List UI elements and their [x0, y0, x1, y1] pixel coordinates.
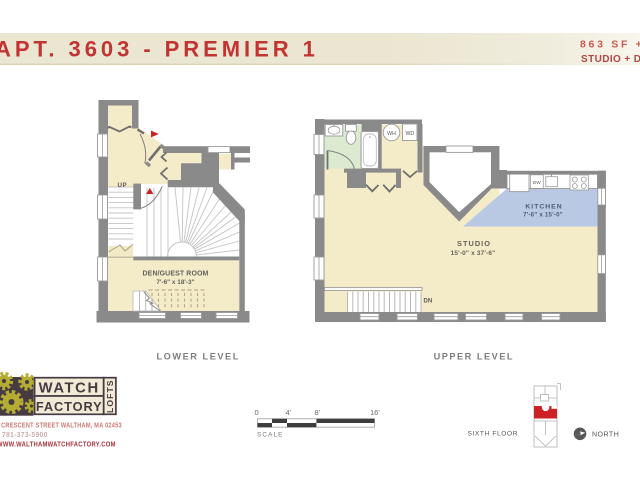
svg-text:DEN/GUEST ROOM: DEN/GUEST ROOM [143, 271, 209, 278]
svg-text:16': 16' [370, 408, 380, 417]
svg-text:NORTH: NORTH [592, 432, 619, 439]
svg-text:STUDIO + DEN: STUDIO + DEN [581, 54, 640, 65]
svg-text:WH: WH [387, 131, 396, 137]
svg-text:863 SF +: 863 SF + [580, 39, 640, 51]
svg-text:7'-6" x 18'-3": 7'-6" x 18'-3" [156, 279, 194, 286]
svg-text:KITCHEN: KITCHEN [525, 204, 562, 211]
svg-text:LOWER LEVEL: LOWER LEVEL [156, 352, 239, 362]
svg-text:SIXTH FLOOR: SIXTH FLOOR [468, 431, 519, 438]
svg-text:APT. 3603 - PREMIER 1: APT. 3603 - PREMIER 1 [0, 37, 319, 62]
svg-text:UPPER LEVEL: UPPER LEVEL [434, 352, 514, 362]
svg-text:7'-6" x 15'-0": 7'-6" x 15'-0" [523, 212, 563, 219]
svg-text:8 CRESCENT STREET WALTHAM, MA: 8 CRESCENT STREET WALTHAM, MA 02453 [0, 422, 122, 430]
svg-text:WATCH: WATCH [39, 381, 100, 397]
svg-text:STUDIO: STUDIO [457, 239, 491, 248]
svg-text:DN: DN [424, 299, 433, 305]
svg-text:WWW.WALTHAMWATCHFACTORY.COM: WWW.WALTHAMWATCHFACTORY.COM [0, 441, 116, 449]
svg-text:LOFTS: LOFTS [105, 379, 115, 413]
svg-text:SCALE: SCALE [257, 432, 283, 439]
svg-text:FACTORY: FACTORY [36, 399, 103, 414]
svg-text:8': 8' [315, 408, 321, 417]
svg-text:0: 0 [255, 408, 259, 417]
svg-text:781-373-5900: 781-373-5900 [2, 432, 48, 439]
svg-text:UP: UP [118, 182, 128, 189]
svg-text:DW: DW [533, 180, 541, 186]
svg-text:15'-0" x 37'-6": 15'-0" x 37'-6" [451, 250, 496, 257]
svg-text:4': 4' [286, 408, 292, 417]
svg-text:WD: WD [405, 131, 414, 137]
